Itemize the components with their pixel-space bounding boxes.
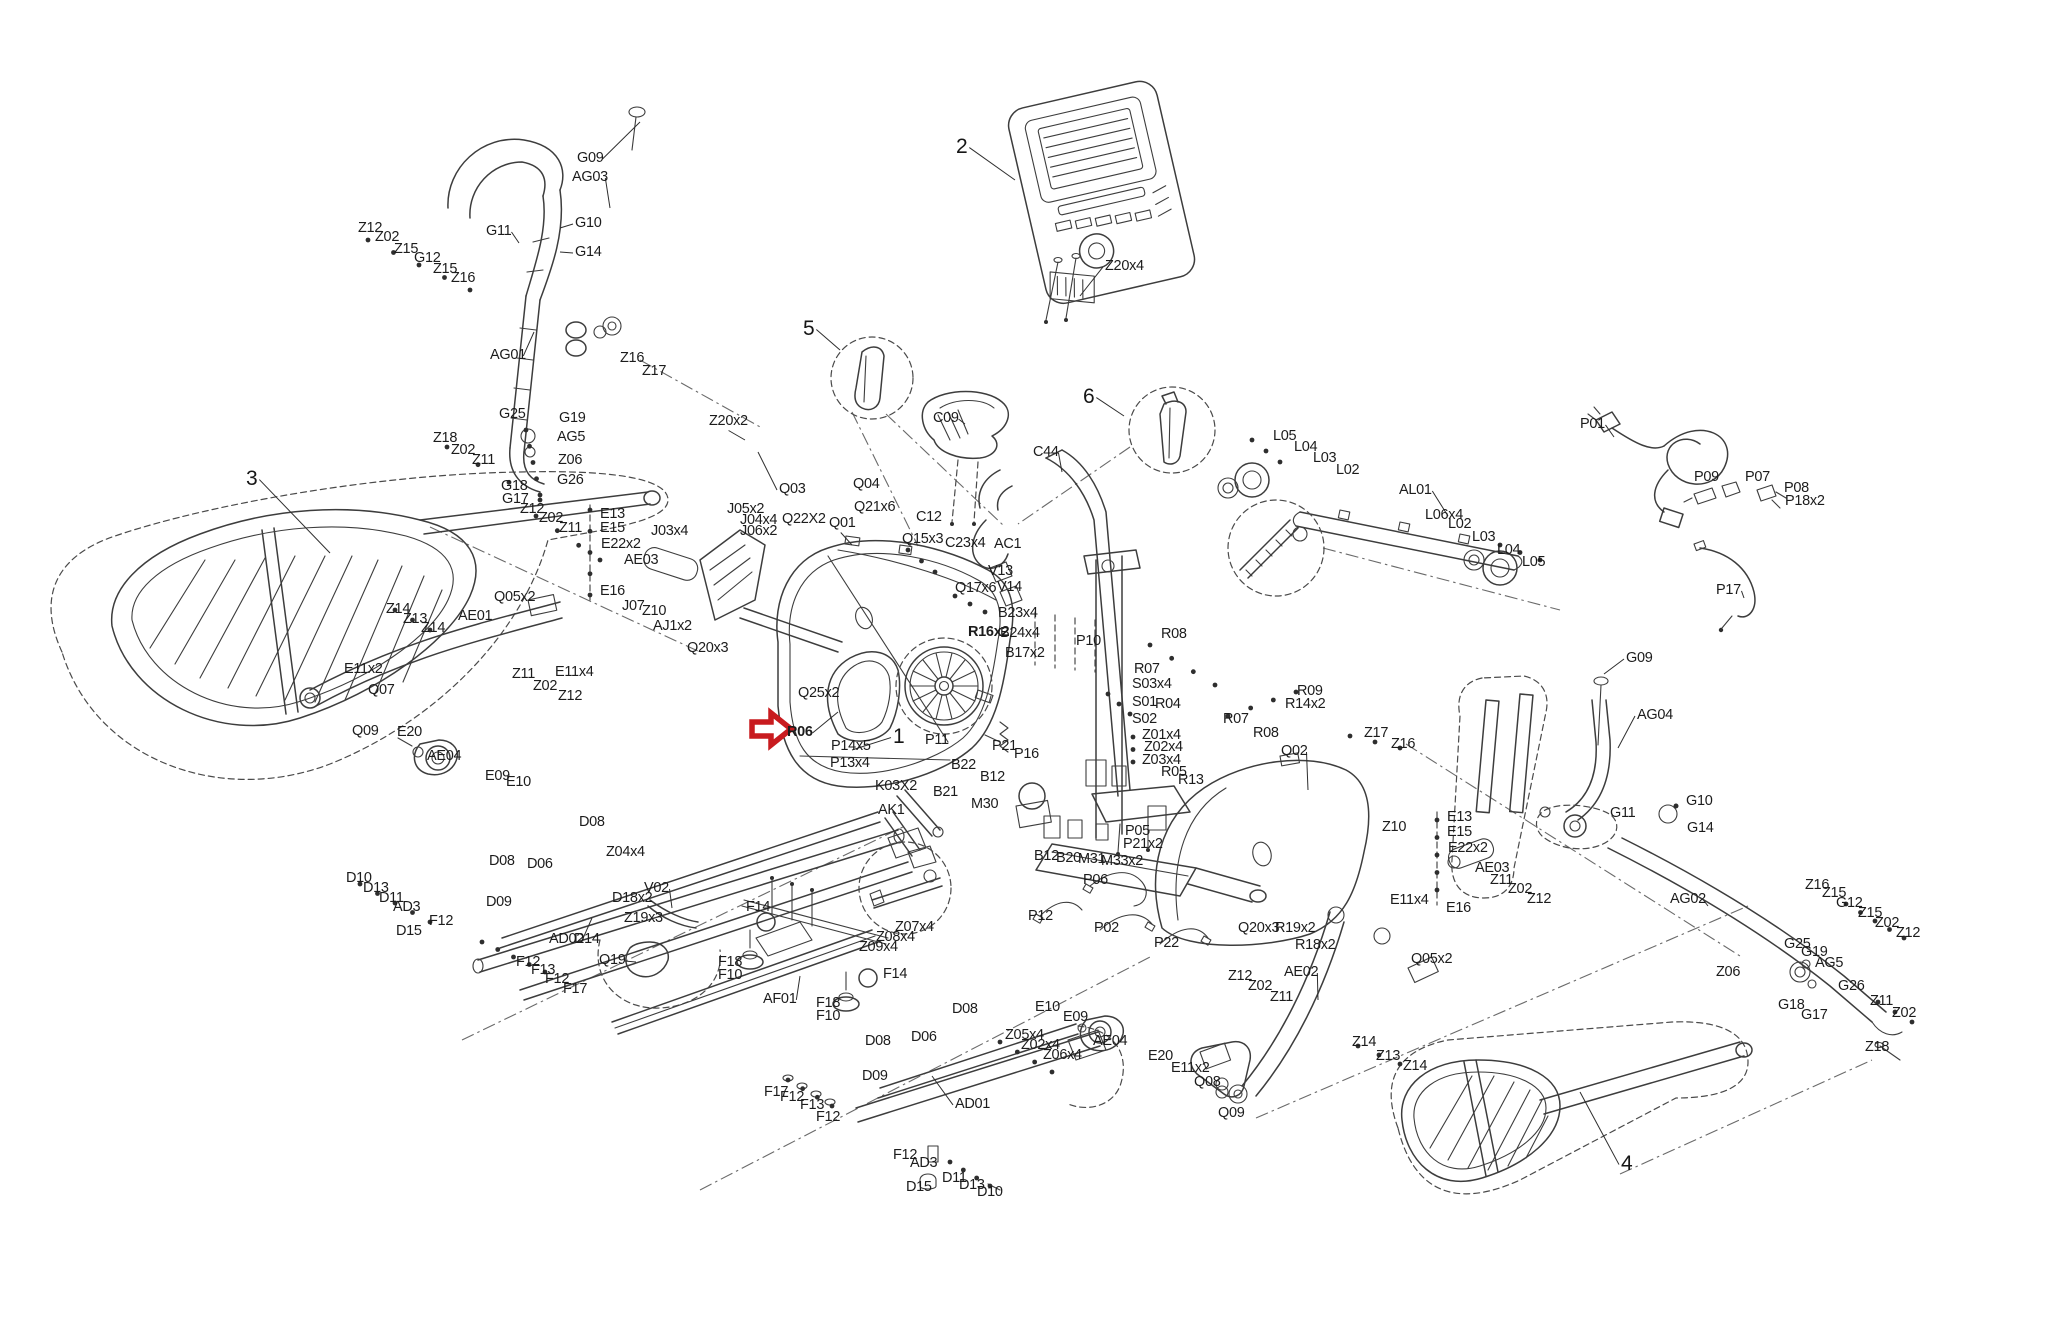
part-label: Q08 — [1194, 1075, 1221, 1090]
part-label: E22x2 — [1448, 841, 1488, 856]
part-label: S03x4 — [1132, 677, 1172, 692]
part-label: AG5 — [1815, 956, 1843, 971]
part-label: Z11 — [512, 667, 535, 682]
part-label: AD01 — [955, 1097, 990, 1112]
part-label: V02 — [644, 881, 669, 896]
part-label: Q07 — [368, 683, 395, 698]
part-label: G11 — [1610, 806, 1635, 821]
part-label: AG5 — [557, 430, 585, 445]
part-label: AE04 — [427, 749, 461, 764]
part-label: P14x5 — [831, 739, 871, 754]
part-label: Z06 — [558, 453, 582, 468]
part-label: Z02 — [1892, 1006, 1916, 1021]
part-label: L05 — [1522, 555, 1545, 570]
part-label: D08 — [489, 854, 515, 869]
part-label: Z18 — [1865, 1040, 1889, 1055]
part-label: D08 — [579, 815, 605, 830]
part-label: K03X2 — [875, 779, 917, 794]
part-label: AE02 — [1284, 965, 1318, 980]
part-label: Z10 — [1382, 820, 1406, 835]
part-label: AG02 — [1670, 892, 1706, 907]
part-label: L02 — [1336, 463, 1359, 478]
part-label: C12 — [916, 510, 942, 525]
part-label: G09 — [1626, 651, 1653, 666]
part-label: C23x4 — [945, 536, 985, 551]
part-label: E15 — [1447, 825, 1472, 840]
part-label: D08 — [865, 1034, 891, 1049]
labels-layer: G09AG03G11G10G14Z12Z02Z15G12Z15Z16AG01Z1… — [0, 0, 2048, 1325]
part-label: Z14 — [421, 621, 445, 636]
part-label: E10 — [1035, 1000, 1060, 1015]
part-label: F10 — [718, 968, 742, 983]
part-label: R04 — [1155, 697, 1181, 712]
part-label: G25 — [499, 407, 526, 422]
part-label: Z09x4 — [859, 940, 898, 955]
part-label: Z02 — [533, 679, 557, 694]
part-label: B12 — [980, 770, 1005, 785]
part-label: S02 — [1132, 712, 1157, 727]
diagram-canvas: G09AG03G11G10G14Z12Z02Z15G12Z15Z16AG01Z1… — [0, 0, 2048, 1325]
part-label: G10 — [575, 216, 602, 231]
part-label: Z17 — [1364, 726, 1388, 741]
part-label: Z12 — [1527, 892, 1551, 907]
part-label: G11 — [486, 224, 511, 239]
part-label: R19x2 — [1275, 921, 1315, 936]
part-label: D15 — [396, 924, 422, 939]
part-label: L02 — [1448, 517, 1471, 532]
part-label: P22 — [1154, 936, 1179, 951]
part-label: F14 — [746, 900, 770, 915]
callout-number: 3 — [246, 468, 258, 489]
part-label: Z20x2 — [709, 414, 748, 429]
part-label: E09 — [1063, 1010, 1088, 1025]
part-label: P02 — [1094, 921, 1119, 936]
part-label: AE04 — [1093, 1034, 1127, 1049]
part-label: E15 — [600, 521, 625, 536]
part-label: Z12 — [558, 689, 582, 704]
part-label: Q01 — [829, 516, 856, 531]
part-label: Z11 — [559, 521, 582, 536]
part-label: V14 — [997, 580, 1022, 595]
part-label: Z17 — [642, 364, 666, 379]
part-label: AF01 — [763, 992, 796, 1007]
part-label: AD3 — [910, 1156, 937, 1171]
part-label: P07 — [1745, 470, 1770, 485]
part-label: Z14 — [1352, 1035, 1376, 1050]
part-label: P21x2 — [1123, 837, 1163, 852]
part-label: F17 — [563, 982, 587, 997]
part-label: D08 — [952, 1002, 978, 1017]
part-label: M33x2 — [1101, 854, 1143, 869]
part-label: E22x2 — [601, 537, 641, 552]
part-label: Q03 — [779, 482, 806, 497]
part-label: D10 — [977, 1185, 1003, 1200]
part-label: F10 — [816, 1009, 840, 1024]
part-label: Z04x4 — [606, 845, 645, 860]
part-label: E13 — [1447, 810, 1472, 825]
part-label: B22 — [951, 758, 976, 773]
part-label: P11 — [925, 733, 949, 748]
part-label: AG03 — [572, 170, 608, 185]
part-label: Z12 — [1896, 926, 1920, 941]
part-label: P06 — [1083, 873, 1108, 888]
part-label: Q15x3 — [902, 532, 943, 547]
part-label: D09 — [862, 1069, 888, 1084]
part-label: B23x4 — [998, 606, 1038, 621]
part-label: AJ1x2 — [653, 619, 692, 634]
part-label: F12 — [429, 914, 453, 929]
part-label: Z11 — [1870, 994, 1893, 1009]
part-label: Z13 — [1376, 1049, 1400, 1064]
part-label: B17x2 — [1005, 646, 1045, 661]
part-label: Z16 — [451, 271, 475, 286]
part-label: AG04 — [1637, 708, 1673, 723]
part-label: Q05x2 — [494, 590, 535, 605]
part-label: Z19x3 — [624, 911, 663, 926]
part-label: E11x4 — [555, 665, 594, 680]
part-label: D15 — [906, 1180, 932, 1195]
part-label: E11x4 — [1390, 893, 1429, 908]
part-label: L04 — [1497, 543, 1520, 558]
part-label: P10 — [1076, 634, 1101, 649]
part-label: B24x4 — [1000, 626, 1040, 641]
part-label: P13x4 — [830, 756, 870, 771]
part-label: AC1 — [994, 537, 1021, 552]
part-label: E11x2 — [344, 662, 383, 677]
part-label: E16 — [600, 584, 625, 599]
part-label: Q09 — [1218, 1106, 1245, 1121]
part-label: AE03 — [624, 553, 658, 568]
part-label: S01 — [1132, 695, 1157, 710]
part-label: J03x4 — [651, 524, 688, 539]
callout-number: 4 — [1621, 1153, 1633, 1174]
part-label: R08 — [1161, 627, 1187, 642]
part-label: Q04 — [853, 477, 880, 492]
part-label: F14 — [883, 967, 907, 982]
part-label: Z20x4 — [1105, 259, 1144, 274]
part-label: Q20x3 — [687, 641, 728, 656]
part-label: R14x2 — [1285, 697, 1325, 712]
part-label: D09 — [486, 895, 512, 910]
part-label: C09 — [933, 411, 959, 426]
part-label: P18x2 — [1785, 494, 1825, 509]
part-label: Q05x2 — [1411, 952, 1452, 967]
part-label: Z11 — [472, 453, 495, 468]
part-label: J06x2 — [740, 524, 777, 539]
part-label: Z02 — [1248, 979, 1272, 994]
callout-number: 2 — [956, 136, 968, 157]
part-label: Q19 — [599, 953, 626, 968]
part-label: E20 — [397, 725, 422, 740]
part-label: G17 — [1801, 1008, 1828, 1023]
part-label: Z11 — [1270, 990, 1293, 1005]
part-label: Z14 — [1403, 1059, 1427, 1074]
part-label: V13 — [988, 564, 1013, 579]
part-label: L03 — [1472, 530, 1495, 545]
part-label: Q25x2 — [798, 686, 839, 701]
part-label: AL01 — [1399, 483, 1432, 498]
part-label: R07 — [1134, 662, 1160, 677]
part-label: L05 — [1273, 429, 1296, 444]
part-label: E20 — [1148, 1049, 1173, 1064]
part-label: D06 — [911, 1030, 937, 1045]
part-label: P17 — [1716, 583, 1741, 598]
part-label: M30 — [971, 797, 998, 812]
part-label: D06 — [527, 857, 553, 872]
part-label: Q09 — [352, 724, 379, 739]
part-label: C44 — [1033, 445, 1059, 460]
part-label: Z16 — [1391, 737, 1415, 752]
part-label: R18x2 — [1295, 938, 1335, 953]
part-label: E16 — [1446, 901, 1471, 916]
part-label: Q02 — [1281, 744, 1308, 759]
part-label: B21 — [933, 785, 958, 800]
part-label: R08 — [1253, 726, 1279, 741]
part-label: Z16 — [620, 351, 644, 366]
part-label: G09 — [577, 151, 604, 166]
part-label: G26 — [1838, 979, 1865, 994]
part-label: G14 — [1687, 821, 1714, 836]
part-label: E10 — [506, 775, 531, 790]
part-label: Z06x4 — [1043, 1048, 1082, 1063]
part-label: R06 — [787, 725, 813, 740]
part-label: P12 — [1028, 909, 1053, 924]
part-label: Z10 — [642, 604, 666, 619]
part-label: P01 — [1580, 417, 1605, 432]
part-label: R13 — [1178, 773, 1204, 788]
part-label: Z06 — [1716, 965, 1740, 980]
part-label: AK1 — [878, 803, 905, 818]
part-label: Q22X2 — [782, 512, 826, 527]
part-label: Q21x6 — [854, 500, 895, 515]
part-label: AE01 — [458, 609, 492, 624]
part-label: R07 — [1223, 712, 1249, 727]
part-label: Q20x3 — [1238, 921, 1279, 936]
part-label: G10 — [1686, 794, 1713, 809]
callout-number: 6 — [1083, 386, 1095, 407]
part-label: P16 — [1014, 747, 1039, 762]
part-label: F12 — [816, 1110, 840, 1125]
callout-number: 5 — [803, 318, 815, 339]
part-label: G26 — [557, 473, 584, 488]
part-label: Q17x6 — [955, 581, 996, 596]
callout-number: 1 — [893, 726, 905, 747]
part-label: AD3 — [393, 900, 420, 915]
part-label: G14 — [575, 245, 602, 260]
part-label: P09 — [1694, 470, 1719, 485]
part-label: D14 — [574, 932, 600, 947]
part-label: L03 — [1313, 451, 1336, 466]
part-label: G19 — [559, 411, 586, 426]
part-label: AG01 — [490, 348, 526, 363]
